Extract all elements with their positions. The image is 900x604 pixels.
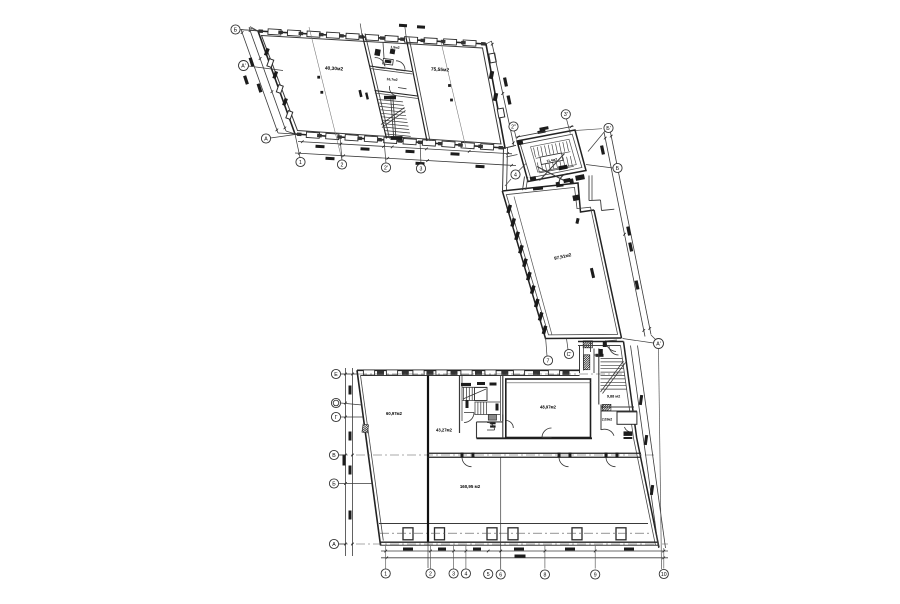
svg-text:16,7м2: 16,7м2: [386, 77, 397, 82]
svg-text:48,97м2: 48,97м2: [540, 405, 557, 410]
svg-text:А: А: [332, 542, 336, 548]
svg-text:5: 5: [487, 572, 490, 578]
svg-text:Г: Г: [335, 415, 338, 421]
svg-text:3: 3: [420, 166, 423, 172]
svg-text:2,03м2: 2,03м2: [602, 418, 613, 422]
svg-text:1: 1: [299, 160, 302, 166]
svg-text:9: 9: [594, 572, 597, 578]
svg-text:Б: Б: [332, 481, 336, 487]
svg-text:7: 7: [547, 358, 550, 364]
svg-text:3: 3: [452, 571, 455, 577]
svg-text:43,27м2: 43,27м2: [436, 428, 453, 433]
svg-text:60,97м2: 60,97м2: [386, 411, 403, 416]
svg-text:2: 2: [429, 571, 432, 577]
svg-text:1,5м2: 1,5м2: [390, 45, 399, 50]
svg-text:2'': 2'': [511, 124, 516, 130]
svg-text:А': А': [241, 63, 245, 69]
svg-text:2: 2: [341, 162, 344, 168]
svg-text:40,30м2: 40,30м2: [325, 66, 344, 73]
svg-text:3': 3': [564, 112, 568, 118]
svg-text:9,88 м2: 9,88 м2: [607, 395, 620, 399]
svg-text:А: А: [264, 136, 268, 142]
svg-text:В: В: [332, 453, 336, 459]
svg-text:Б': Б': [606, 126, 610, 132]
svg-text:8: 8: [543, 572, 546, 578]
svg-text:1: 1: [384, 571, 387, 577]
svg-text:Е: Е: [334, 372, 338, 378]
svg-text:10: 10: [661, 572, 667, 578]
svg-text:А': А': [656, 341, 660, 347]
svg-text:4: 4: [464, 571, 467, 577]
svg-text:2': 2': [384, 165, 388, 171]
svg-text:Б: Б: [616, 166, 620, 172]
svg-text:6: 6: [499, 572, 502, 578]
svg-text:Б: Б: [234, 27, 238, 33]
svg-text:С': С': [567, 352, 572, 358]
svg-text:160,95 м2: 160,95 м2: [460, 484, 481, 489]
svg-text:4: 4: [514, 172, 517, 178]
